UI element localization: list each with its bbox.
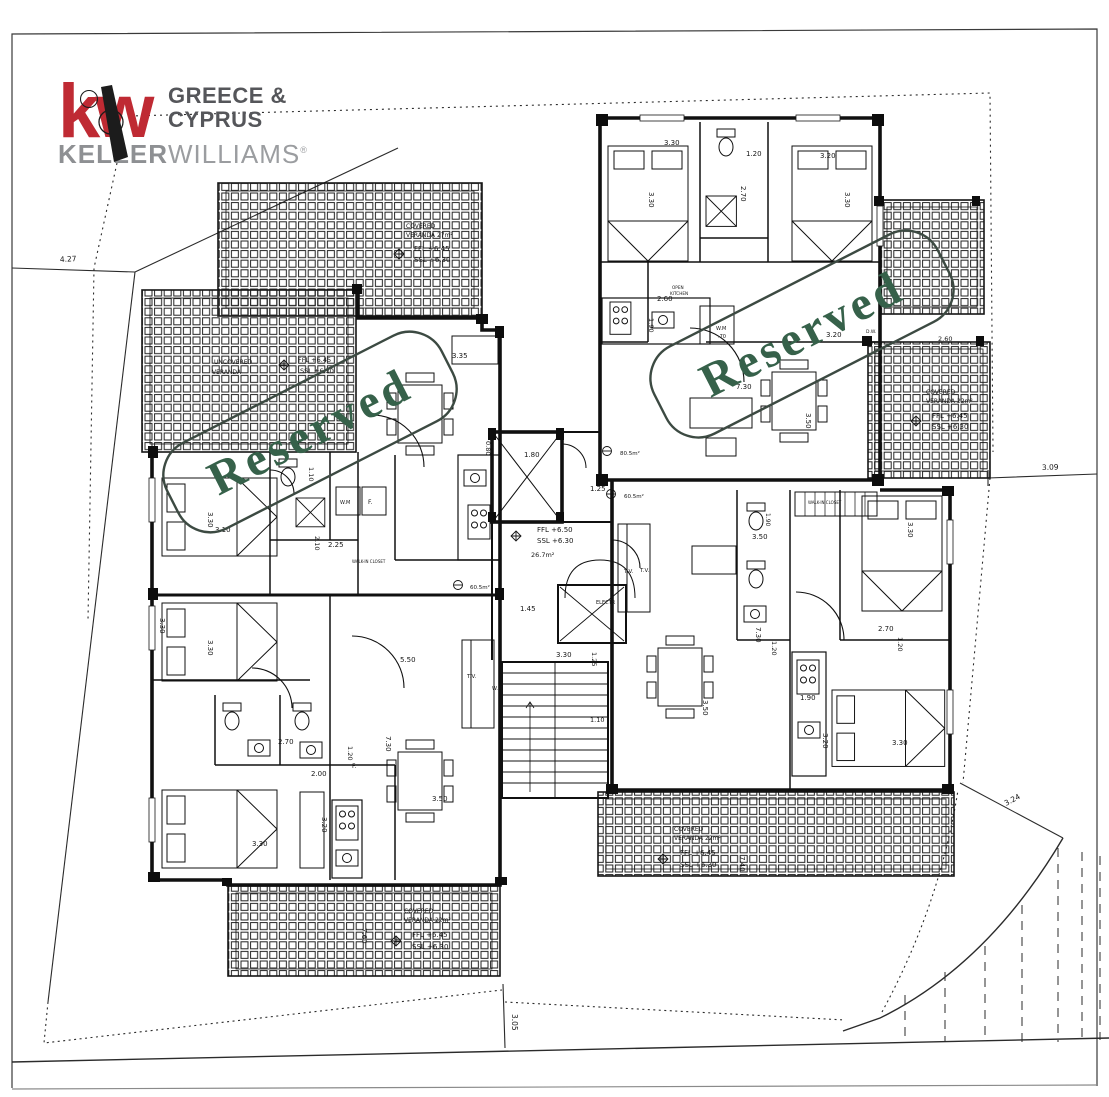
elevator-x bbox=[494, 434, 560, 520]
kw-brand-name: KELLERWILLIAMS® bbox=[58, 139, 308, 169]
kw-region-line2: CYPRUS bbox=[168, 107, 263, 132]
dimension-label: VERANDA 27m² bbox=[406, 232, 453, 239]
dimension-label: 1.20 bbox=[746, 150, 762, 158]
dimension-label: 3.20 bbox=[821, 733, 829, 749]
dimension-label: 7.30 bbox=[754, 627, 762, 643]
dimension-label: 3.24 bbox=[1003, 792, 1022, 808]
dimension-label: 1.10 bbox=[590, 716, 604, 724]
dimension-label: WALK-IN CLOSET bbox=[808, 500, 842, 505]
dimension-label: 3.30 bbox=[647, 192, 655, 208]
dimension-label: SSL +6.30 bbox=[412, 943, 448, 951]
boundary-segment bbox=[48, 272, 135, 1002]
stair-treads bbox=[502, 662, 608, 798]
dimension-label: VERANDA 22m² bbox=[926, 398, 973, 405]
dimension-label: 1.45 bbox=[520, 605, 536, 613]
dimension-label: T.V. bbox=[466, 674, 477, 680]
dimension-label: 3.30 bbox=[664, 139, 680, 147]
dimension-label: 2.00 bbox=[311, 770, 327, 778]
dimension-label: 2.60 bbox=[938, 335, 952, 343]
dimension-label: VERANDA 22m² bbox=[674, 835, 721, 842]
dimension-label: 1.25 bbox=[590, 652, 598, 666]
dimension-label: 2.25 bbox=[328, 541, 344, 549]
electrical-x bbox=[560, 587, 624, 641]
dimension-label: 1.80 bbox=[524, 451, 540, 459]
veranda-covered-bottom-right bbox=[598, 792, 954, 876]
boundary-segment bbox=[988, 470, 1097, 486]
dimension-label: 4.27 bbox=[60, 254, 77, 264]
dimension-label: W.M bbox=[716, 326, 726, 332]
dimension-label: FFL +6.50 bbox=[537, 526, 573, 534]
dimension-label: 80.5m² bbox=[620, 450, 640, 457]
dimension-label: SSL +6.30 bbox=[932, 423, 968, 431]
dimension-label: OPEN bbox=[672, 285, 684, 290]
dimension-label: 2.60 bbox=[657, 295, 673, 303]
sightline-dotted bbox=[88, 163, 117, 620]
dimension-label: F. bbox=[368, 499, 372, 506]
dimension-label: COVERED bbox=[404, 908, 434, 915]
dimension-label: 1.20 bbox=[770, 641, 778, 655]
dimension-label: W.M bbox=[492, 686, 502, 692]
dimension-label: SSL +6.30 bbox=[414, 256, 450, 264]
dimension-label: 7.30 bbox=[384, 736, 392, 752]
dimension-label: 3.30 bbox=[892, 739, 908, 747]
dimension-label: FFL +6.45 bbox=[414, 245, 450, 253]
dimension-label: 2.70 bbox=[739, 186, 747, 202]
boundary-segment bbox=[12, 268, 135, 272]
dimension-label: F. bbox=[352, 763, 356, 770]
dimension-label: 5.50 bbox=[400, 656, 416, 664]
dimension-label: 60.5m² bbox=[470, 584, 490, 591]
dimension-label: 3.05 bbox=[510, 1014, 519, 1031]
dimension-label: 3.50 bbox=[752, 533, 768, 541]
dimension-label: 1.90 bbox=[764, 513, 771, 527]
dimension-label: 3.30 bbox=[556, 651, 572, 659]
road-edge bbox=[12, 1038, 1109, 1062]
dimension-label: FFL +6.45 bbox=[412, 931, 448, 939]
dimension-label: 3.30 bbox=[206, 512, 214, 528]
dimension-label: 1.90 bbox=[800, 694, 816, 702]
veranda-covered-right bbox=[868, 342, 990, 478]
dimension-label: COVERED bbox=[406, 223, 436, 230]
dimension-label: 1.10 bbox=[307, 467, 315, 481]
dimension-label: 1.20 bbox=[896, 637, 904, 651]
dimension-label: 60.5m² bbox=[624, 493, 644, 500]
boundary-dotted bbox=[963, 478, 990, 783]
dimension-label: 3.50 bbox=[804, 413, 812, 429]
dimension-label: VERANDA 22m² bbox=[404, 917, 451, 924]
dimension-label: 1.20 bbox=[346, 746, 354, 760]
boundary-dotted bbox=[44, 990, 502, 1043]
dimension-label: FFL +6.45 bbox=[680, 849, 716, 857]
central-core bbox=[454, 432, 636, 798]
floor-plan-drawing: 4.273.093.243.05COVEREDVERANDA 27m²FFL +… bbox=[0, 0, 1109, 1097]
dimension-label: 0.80 bbox=[484, 441, 492, 455]
dimension-label: SSL +6.30 bbox=[537, 537, 573, 545]
dimension-label: 3.30 bbox=[843, 192, 851, 208]
dimension-label: 3.09 bbox=[1042, 462, 1059, 472]
dimension-label: WALK-IN CLOSET bbox=[352, 559, 386, 564]
kw-logo: kw GREECE & CYPRUS KELLERWILLIAMS® bbox=[58, 69, 308, 169]
dimension-label: 7.40 bbox=[738, 856, 746, 872]
dimension-label: .70 bbox=[718, 334, 726, 340]
dimension-label: 26.7m² bbox=[531, 551, 555, 559]
boundary-tick bbox=[503, 984, 505, 1048]
sheet-frame bbox=[12, 29, 1097, 1089]
dimension-label: ELECTR bbox=[596, 600, 616, 606]
dimension-label: FFL +6.45 bbox=[932, 412, 968, 420]
dimension-label: UNCOVERED bbox=[214, 359, 253, 366]
dimension-label: COVERED bbox=[674, 826, 704, 833]
dimension-label: VERANDA bbox=[212, 369, 242, 376]
dimension-label: 1.25 bbox=[590, 485, 606, 493]
dimension-label: 3.30 bbox=[206, 640, 214, 656]
interior-walls bbox=[152, 452, 500, 880]
dimension-label: W.M bbox=[340, 500, 350, 506]
dimension-label: 3.35 bbox=[452, 352, 468, 360]
dimension-label: T.V. bbox=[639, 568, 650, 574]
core-walls bbox=[492, 432, 612, 660]
dimension-label: COVERED bbox=[926, 389, 956, 396]
dimension-label: 3.30 bbox=[252, 840, 268, 848]
dimension-label: T.V. bbox=[623, 569, 634, 575]
dimension-label: 2.70 bbox=[278, 738, 294, 746]
dimension-label: KITCHEN bbox=[670, 291, 688, 296]
dimension-label: 3.20 bbox=[820, 152, 836, 160]
dimension-label: 7.60 bbox=[360, 928, 368, 944]
scanned-floor-plan-sheet: 4.273.093.243.05COVEREDVERANDA 27m²FFL +… bbox=[0, 0, 1109, 1097]
dimension-label: 3.20 bbox=[320, 817, 328, 833]
dimension-label: 2.70 bbox=[878, 625, 894, 633]
dimension-label: 2.10 bbox=[313, 536, 321, 550]
dimension-label: SSL +6.30 bbox=[680, 861, 716, 869]
dimension-label: 3.50 bbox=[432, 795, 448, 803]
dimension-label: 3.30 bbox=[906, 522, 914, 538]
boundary-dotted bbox=[505, 1002, 845, 1020]
boundary-segment bbox=[960, 783, 1063, 838]
dimension-label: 3.50 bbox=[701, 700, 709, 716]
dimension-label: 3.30 bbox=[158, 618, 166, 634]
kw-region-line1: GREECE & bbox=[168, 83, 287, 108]
dimension-label: FFL +6.45 bbox=[298, 356, 331, 364]
dimension-label: 1.90 bbox=[647, 318, 655, 332]
stair-arrow bbox=[526, 702, 534, 792]
